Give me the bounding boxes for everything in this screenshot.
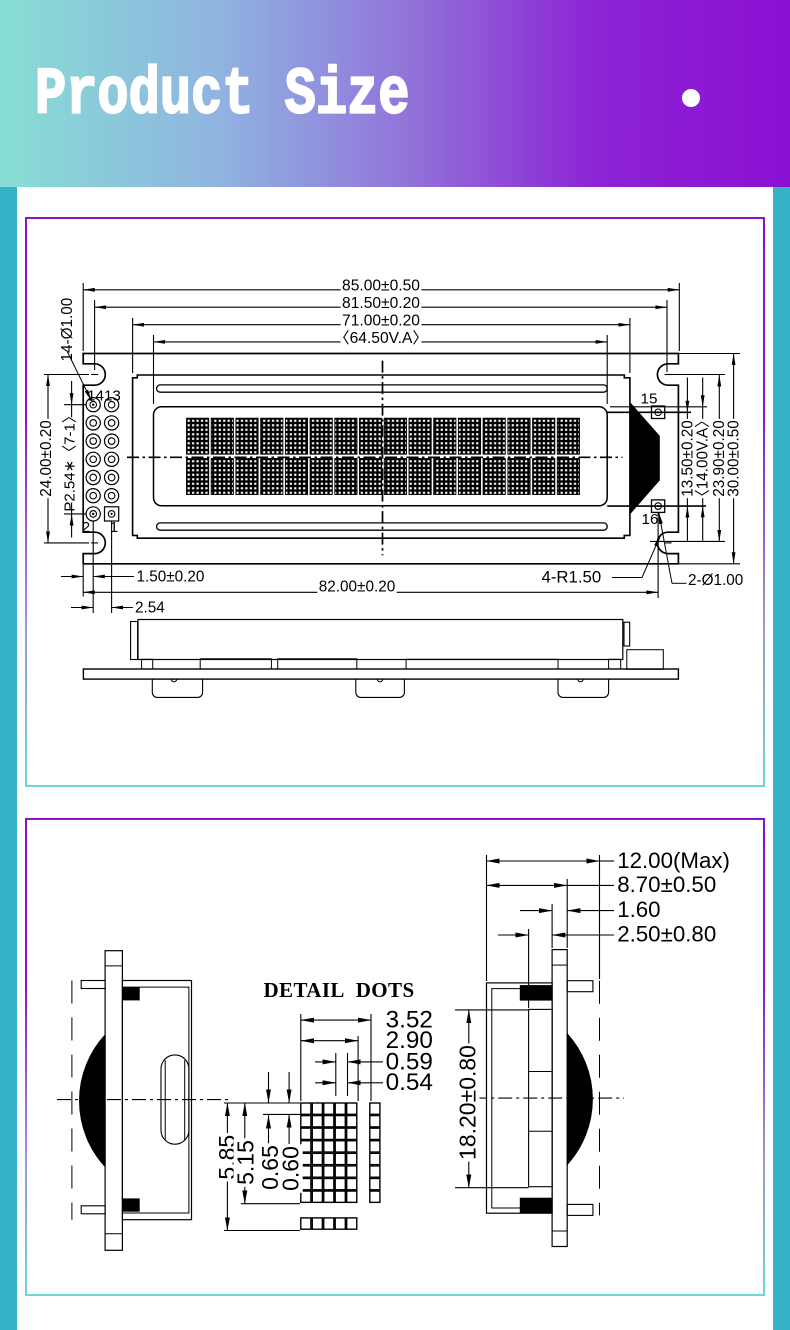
svg-text:2.50±0.80: 2.50±0.80 <box>617 922 716 947</box>
svg-text:1413: 1413 <box>87 388 121 405</box>
svg-text:1.60: 1.60 <box>617 897 660 922</box>
svg-text:DETAIL DOTS: DETAIL DOTS <box>263 978 414 1002</box>
svg-text:4-R1.50: 4-R1.50 <box>542 568 602 587</box>
svg-text:1.50±0.20: 1.50±0.20 <box>137 568 205 585</box>
svg-text:18.20±0.80: 18.20±0.80 <box>454 1045 480 1160</box>
svg-text:16: 16 <box>642 511 659 528</box>
svg-text:0.60: 0.60 <box>278 1146 304 1191</box>
svg-text:8.70±0.50: 8.70±0.50 <box>617 872 716 897</box>
svg-text:30.00±0.50: 30.00±0.50 <box>726 420 743 496</box>
svg-text:〈14.00V.A〉: 〈14.00V.A〉 <box>695 412 712 504</box>
svg-text:1: 1 <box>110 519 118 536</box>
svg-text:71.00±0.20: 71.00±0.20 <box>342 313 420 330</box>
svg-text:2-Ø1.00: 2-Ø1.00 <box>688 572 743 589</box>
svg-text:81.50±0.20: 81.50±0.20 <box>342 295 420 312</box>
svg-text:〈64.50V.A〉: 〈64.50V.A〉 <box>334 330 428 347</box>
svg-text:14-Ø1.00: 14-Ø1.00 <box>59 298 76 362</box>
svg-text:0.54: 0.54 <box>386 1069 433 1096</box>
svg-text:5.15: 5.15 <box>233 1140 259 1185</box>
svg-text:85.00±0.50: 85.00±0.50 <box>342 278 420 295</box>
svg-text:P2.54∗〈7-1〉: P2.54∗〈7-1〉 <box>62 408 79 511</box>
svg-text:24.00±0.20: 24.00±0.20 <box>38 420 55 496</box>
svg-text:2.54: 2.54 <box>135 599 165 616</box>
svg-text:15: 15 <box>641 391 658 408</box>
svg-text:12.00(Max): 12.00(Max) <box>617 848 730 873</box>
svg-text:2: 2 <box>82 519 90 536</box>
svg-text:82.00±0.20: 82.00±0.20 <box>319 578 395 595</box>
